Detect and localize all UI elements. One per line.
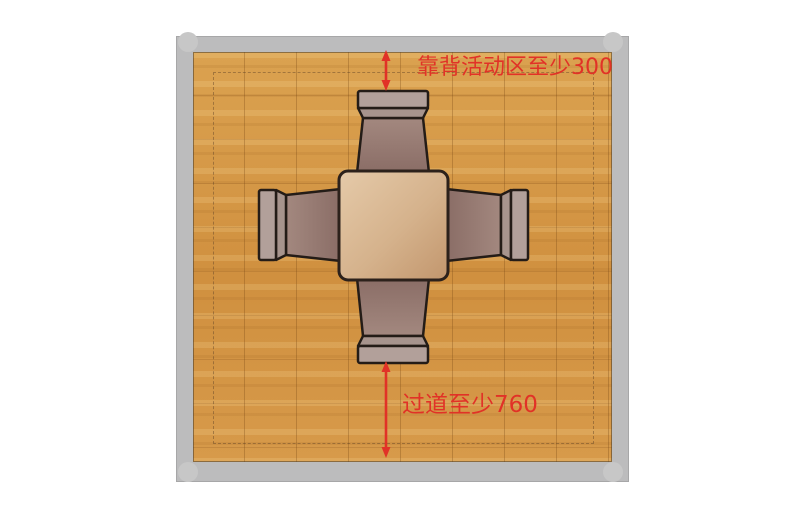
chair-top-bevel: [358, 108, 428, 118]
chair-bottom-bevel: [358, 336, 428, 346]
chair-bottom-backrest: [358, 346, 428, 363]
label-aisle: 过道至少760: [402, 393, 538, 417]
chair-bottom-seat: [357, 278, 429, 336]
dining-table: [339, 171, 448, 280]
chair-left-bevel: [276, 190, 286, 260]
diagram-canvas: 靠背活动区至少300 过道至少760: [0, 0, 800, 518]
chair-right-backrest: [511, 190, 528, 260]
chair-right-seat: [446, 189, 501, 261]
chair-left-backrest: [259, 190, 276, 260]
furniture-layer: [0, 0, 800, 518]
chair-top-seat: [357, 118, 429, 173]
chair-right-bevel: [501, 190, 511, 260]
dimension-arrow-aisle: [382, 361, 391, 458]
chair-left-seat: [286, 189, 341, 261]
dimension-arrow-backrest: [382, 50, 391, 91]
label-backrest-zone: 靠背活动区至少300: [417, 56, 613, 79]
chair-top-backrest: [358, 91, 428, 108]
